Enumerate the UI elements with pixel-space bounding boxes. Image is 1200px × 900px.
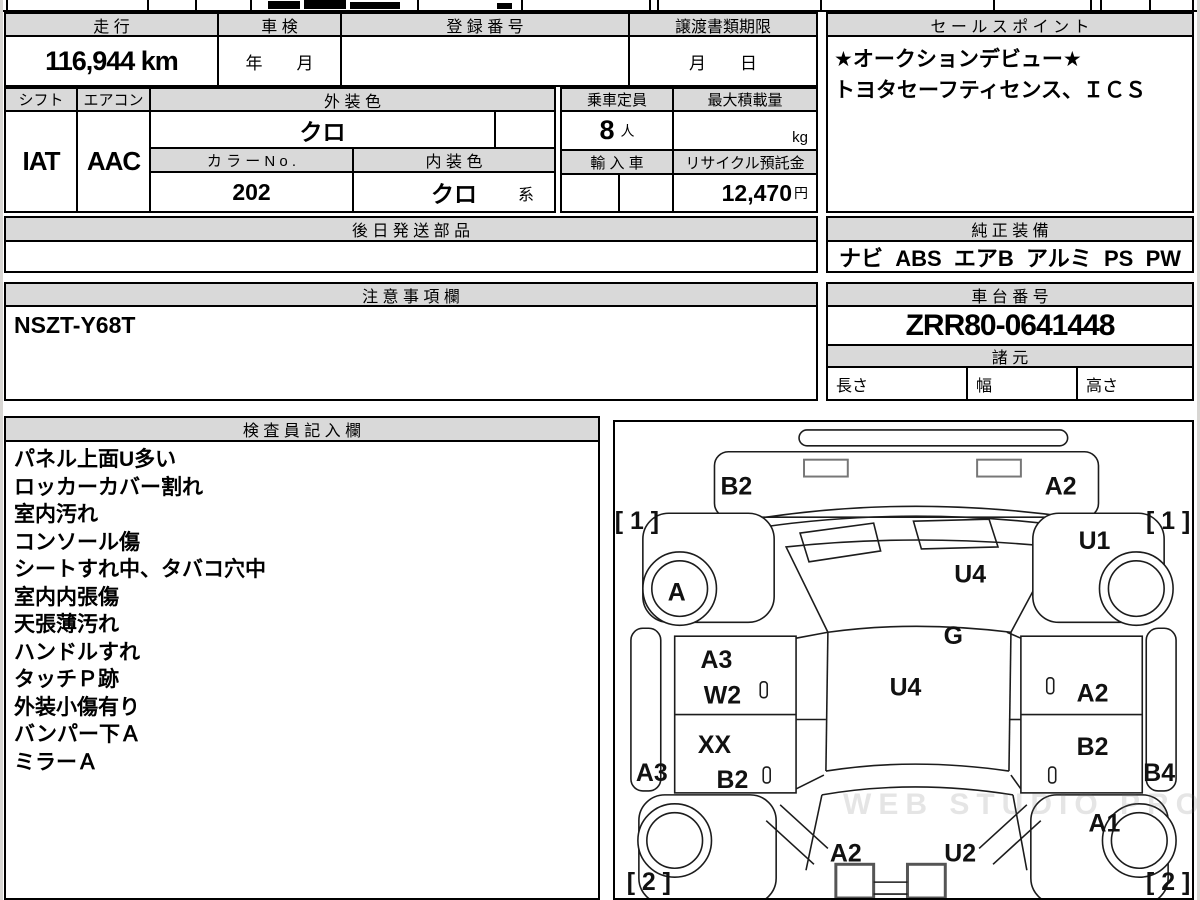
- sales-point-box: セ ー ル ス ポ イ ン ト ★オークションデビュー★トヨタセーフティセンス、…: [826, 12, 1194, 213]
- car-windshield: [786, 540, 1057, 632]
- notes-value: NSZT-Y68T: [14, 312, 135, 339]
- capacity-header: 乗車定員: [562, 89, 674, 112]
- car-top-view-diagram: B2A2[ 1 ][ 1 ]U1AU4GA3W2U4A2XXB2B2A3B4A1…: [615, 422, 1192, 898]
- damage-code-label: XX: [698, 732, 732, 759]
- shaken-value: 年 月: [219, 37, 342, 85]
- damage-code-label: A2: [1045, 473, 1077, 500]
- spec-height-cell: 高さ: [1078, 368, 1192, 399]
- exterior-color-value: クロ: [151, 112, 496, 149]
- capacity-value: 8 人: [562, 112, 674, 151]
- car-roof-left-edge: [826, 632, 828, 771]
- interior-color-text: クロ: [431, 175, 477, 209]
- exterior-color-header: 外 装 色: [151, 89, 554, 112]
- car-apillar-left: [796, 632, 828, 638]
- car-wheel-rear-left: [638, 804, 712, 877]
- damage-diagram-box: B2A2[ 1 ][ 1 ]U1AU4GA3W2U4A2XXB2B2A3B4A1…: [613, 420, 1194, 900]
- inspector-item: 室内汚れ: [14, 501, 266, 529]
- interior-color-suffix: 系: [518, 181, 534, 205]
- main-info-table-right: 乗車定員 最大積載量 8 人 kg 輸 入 車 リサイクル預託金 12,470 …: [560, 87, 818, 213]
- sales-point-line: トヨタセーフティセンス、ＩＣＳ: [834, 75, 1146, 106]
- car-cpillar-left: [796, 775, 824, 789]
- later-parts-value: [6, 242, 816, 271]
- spec-width-cell: 幅: [968, 368, 1078, 399]
- car-top-strip: [799, 430, 1068, 446]
- mileage-value: 116,944 km: [6, 37, 219, 85]
- main-info-table-top: 走 行 車 検 登 録 番 号 譲渡書類期限 116,944 km 年 月 月 …: [4, 12, 818, 87]
- sales-point-header: セ ー ル ス ポ イ ン ト: [828, 14, 1192, 37]
- damage-code-label: B2: [716, 767, 748, 794]
- chassis-header: 車 台 番 号: [828, 284, 1192, 307]
- car-roof-right-edge: [1009, 632, 1011, 771]
- car-rear-notch-right: [907, 864, 945, 898]
- car-cpillar-right: [1011, 775, 1021, 789]
- notes-box: 注 意 事 項 欄 NSZT-Y68T: [4, 282, 818, 401]
- recycle-number: 12,470: [722, 180, 792, 207]
- car-rear-window-top: [826, 764, 1009, 771]
- damage-code-label: U4: [890, 675, 922, 702]
- max-load-header: 最大積載量: [674, 89, 816, 112]
- spec-length-cell: 長さ: [828, 368, 968, 399]
- inspector-box: 検 査 員 記 入 欄 パネル上面U多いロッカーカバー割れ室内汚れコンソール傷シ…: [4, 416, 600, 900]
- inspector-item: バンパー下Ａ: [14, 721, 266, 749]
- damage-code-label: A: [668, 580, 686, 607]
- shift-header: シフト: [6, 89, 78, 112]
- import-header: 輸 入 車: [562, 151, 674, 175]
- equipment-header: 純 正 装 備: [828, 218, 1192, 242]
- aircon-value: AAC: [78, 112, 151, 211]
- damage-code-label: W2: [704, 683, 741, 710]
- damage-code-label: A2: [830, 840, 862, 867]
- cutoff-top-row: [0, 0, 1200, 12]
- page-edge-left: [0, 0, 3, 900]
- inspector-item: ミラーＡ: [14, 749, 266, 777]
- inspector-item-list: パネル上面U多いロッカーカバー割れ室内汚れコンソール傷シートすれ中、タバコ穴中室…: [14, 446, 266, 776]
- exterior-color-extra: [496, 112, 554, 149]
- interior-color-value: クロ 系: [354, 173, 554, 211]
- recycle-header: リサイクル預託金: [674, 151, 816, 175]
- inspector-item: ハンドルすれ: [14, 639, 266, 667]
- later-parts-header: 後 日 発 送 部 品: [6, 218, 816, 242]
- import-value: [562, 175, 674, 211]
- shaken-header: 車 検: [219, 14, 342, 37]
- inspector-item: シートすれ中、タバコ穴中: [14, 556, 266, 584]
- damage-code-label: [ 1 ]: [615, 508, 659, 535]
- interior-color-header: 内 装 色: [354, 149, 554, 173]
- inspector-item: 室内内張傷: [14, 584, 266, 612]
- color-no-header: カ ラ ー N o .: [151, 149, 354, 173]
- damage-code-label: U2: [944, 840, 976, 867]
- inspector-header: 検 査 員 記 入 欄: [6, 418, 598, 442]
- inspector-item: タッチＰ跡: [14, 666, 266, 694]
- damage-code-label: U1: [1079, 528, 1111, 555]
- damage-code-label: A3: [636, 760, 668, 787]
- inspector-item: パネル上面U多い: [14, 446, 266, 474]
- registration-value: [342, 37, 630, 85]
- notes-header: 注 意 事 項 欄: [6, 284, 816, 307]
- spec-header: 諸 元: [828, 346, 1192, 368]
- car-rear-notch-left: [836, 864, 874, 898]
- damage-code-label: G: [944, 623, 963, 650]
- deadline-value: 月 日: [630, 37, 816, 85]
- inspector-item: 天張薄汚れ: [14, 611, 266, 639]
- inspector-item: 外装小傷有り: [14, 694, 266, 722]
- damage-code-label: A2: [1077, 681, 1109, 708]
- shift-value: IAT: [6, 112, 78, 211]
- recycle-value-cell: 12,470 円: [674, 175, 816, 211]
- car-vent-right: [913, 519, 998, 549]
- inspector-item: ロッカーカバー割れ: [14, 474, 266, 502]
- damage-code-label: B2: [720, 473, 752, 500]
- max-load-unit: kg: [792, 129, 808, 146]
- deadline-header: 譲渡書類期限: [630, 14, 816, 37]
- max-load-value: kg: [674, 112, 816, 151]
- car-front-bumper: [714, 452, 1098, 517]
- sales-point-line: ★オークションデビュー★: [834, 44, 1146, 75]
- damage-code-label: U4: [954, 562, 986, 589]
- watermark: WEB STUDIO PRO: [843, 788, 1200, 822]
- sales-point-lines: ★オークションデビュー★トヨタセーフティセンス、ＩＣＳ: [834, 44, 1146, 106]
- car-wheel-front-right: [1099, 552, 1173, 625]
- chassis-value: ZRR80-0641448: [828, 307, 1192, 346]
- chassis-box: 車 台 番 号 ZRR80-0641448 諸 元 長さ 幅 高さ: [826, 282, 1194, 401]
- aircon-header: エアコン: [78, 89, 151, 112]
- color-no-value: 202: [151, 173, 354, 211]
- car-apillar-right: [1007, 632, 1021, 638]
- later-parts-box: 後 日 発 送 部 品: [4, 216, 818, 273]
- capacity-unit: 人: [621, 121, 635, 141]
- main-info-table-left: シフト エアコン 外 装 色 IAT AAC クロ カ ラ ー N o . 内 …: [4, 87, 556, 213]
- capacity-number: 8: [599, 115, 614, 146]
- registration-header: 登 録 番 号: [342, 14, 630, 37]
- import-cell-divider: [618, 175, 620, 211]
- damage-code-label: [ 2 ]: [627, 869, 671, 896]
- damage-code-label: B4: [1143, 760, 1175, 787]
- equipment-value: ナビ ABS エアB アルミ PS PW: [828, 242, 1192, 271]
- equipment-box: 純 正 装 備 ナビ ABS エアB アルミ PS PW: [826, 216, 1194, 273]
- damage-code-label: A3: [701, 647, 733, 674]
- car-dpillar-left-1: [780, 805, 828, 849]
- mileage-header: 走 行: [6, 14, 219, 37]
- inspector-item: コンソール傷: [14, 529, 266, 557]
- damage-code-label: B2: [1077, 734, 1109, 761]
- auction-sheet: 走 行 車 検 登 録 番 号 譲渡書類期限 116,944 km 年 月 月 …: [0, 0, 1200, 900]
- damage-code-label: [ 2 ]: [1146, 869, 1190, 896]
- recycle-unit: 円: [794, 183, 808, 203]
- damage-code-label: [ 1 ]: [1146, 508, 1190, 535]
